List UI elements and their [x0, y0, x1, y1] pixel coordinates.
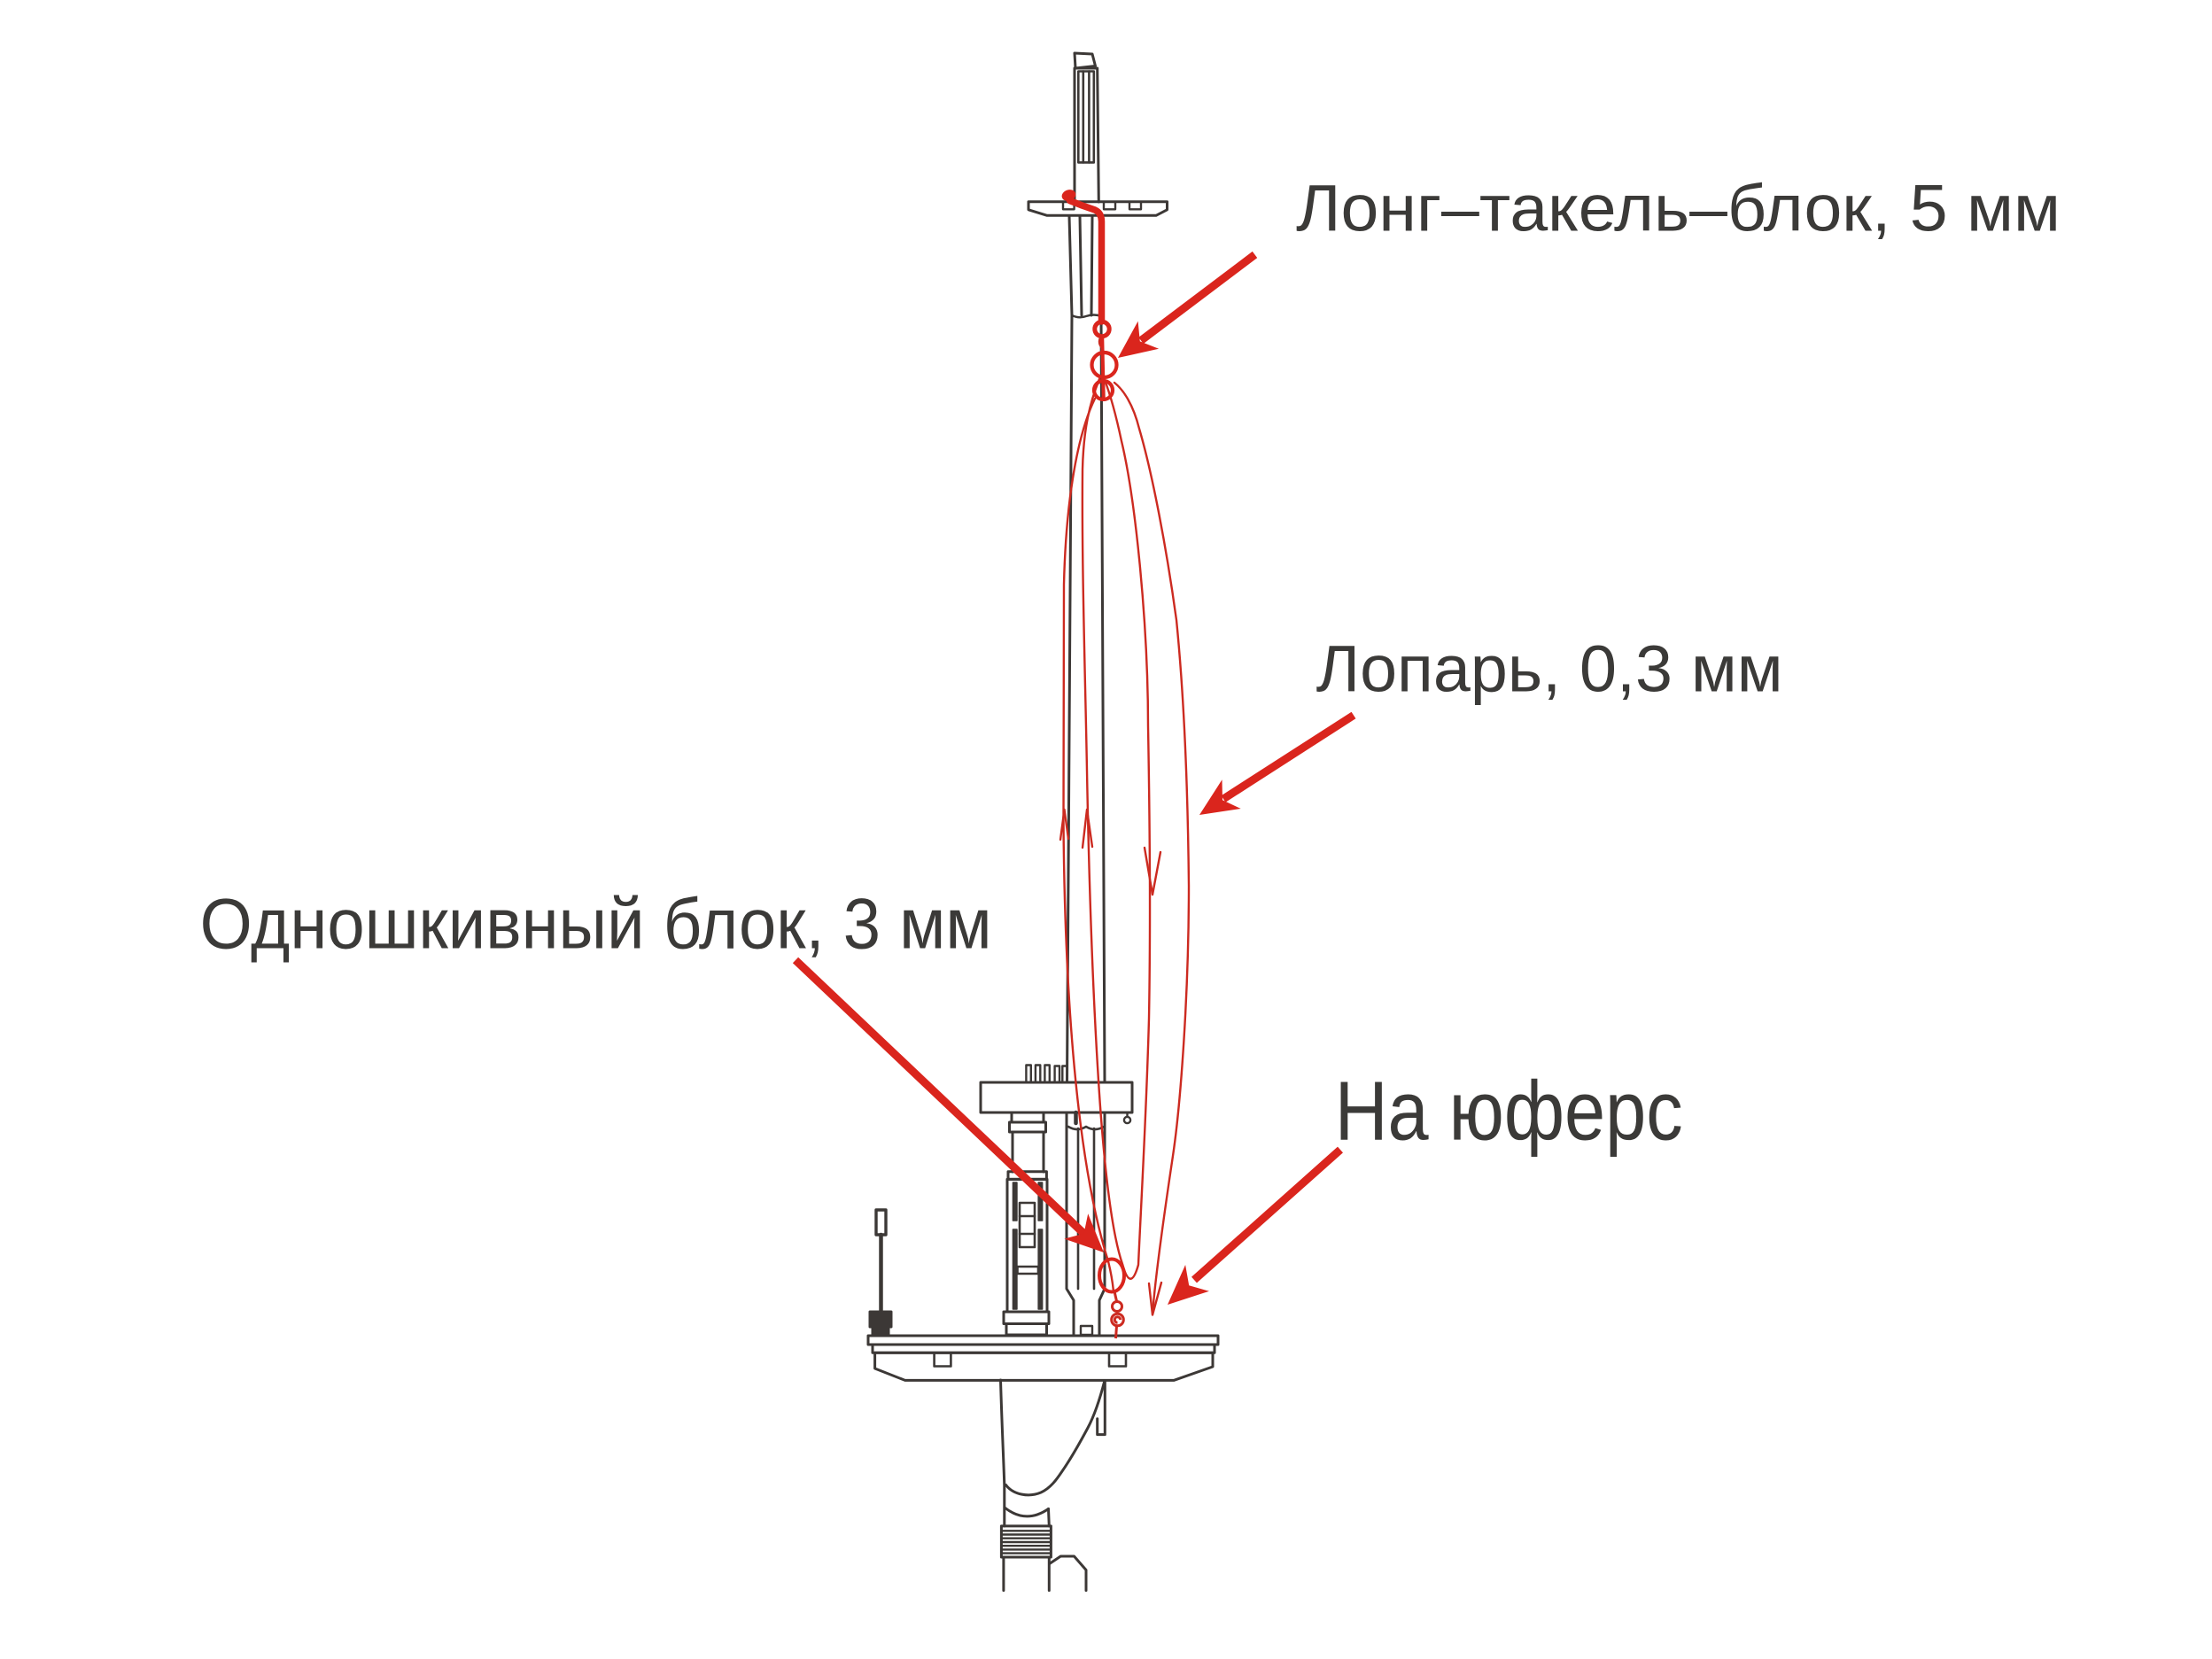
svg-text:Лонг–такель–блок, 5 мм: Лонг–такель–блок, 5 мм [1296, 172, 2061, 245]
svg-text:Лопарь, 0,3 мм: Лопарь, 0,3 мм [1316, 632, 1783, 706]
svg-text:Одношкивный блок, 3 мм: Одношкивный блок, 3 мм [200, 885, 992, 965]
svg-text:На юферс: На юферс [1335, 1064, 1683, 1158]
